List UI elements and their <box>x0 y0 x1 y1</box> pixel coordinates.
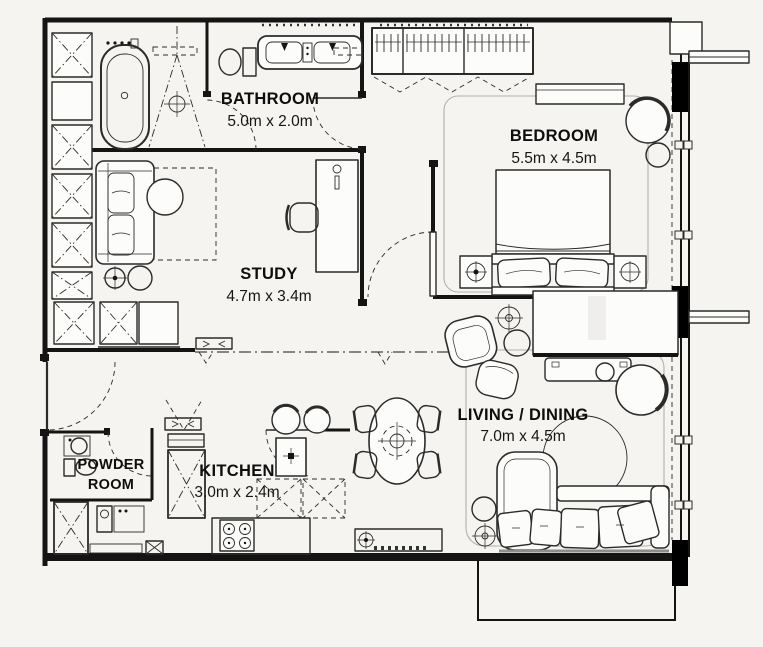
bed-duvet <box>496 170 610 254</box>
living-dining-dims: 7.0m x 4.5m <box>480 428 565 445</box>
wall-end-cap <box>203 91 211 97</box>
sofa-cushion <box>497 510 534 548</box>
wall-end-cap <box>358 299 367 306</box>
lamp-dot <box>474 270 479 275</box>
burner-dot <box>244 542 246 544</box>
study-label: STUDY <box>240 265 297 283</box>
pillow <box>555 258 608 289</box>
faucet-dot-icon <box>120 41 123 44</box>
wardrobe-carcass <box>372 28 533 74</box>
mullion-icon <box>684 141 692 149</box>
corner-column <box>670 22 702 54</box>
living-dining-label: LIVING / DINING <box>457 406 588 424</box>
sofa-bed <box>96 161 154 264</box>
tv-console <box>545 358 631 381</box>
mullion-icon <box>675 501 683 509</box>
sofa-cushion <box>530 509 563 546</box>
toiletries-dot <box>306 53 308 55</box>
burner-dot <box>228 528 230 530</box>
knob-dot <box>125 510 128 513</box>
burner-dot <box>244 528 246 530</box>
pillow-shape <box>497 258 550 289</box>
wall-end-cap <box>429 160 438 167</box>
faucet-dot-icon <box>113 41 116 44</box>
powder-room-label-line1: POWDER <box>77 457 144 473</box>
toiletries-dot <box>306 47 308 49</box>
floor-plan-drawing: BATHROOM 5.0m x 2.0m BEDROOM 5.5m x 4.5m… <box>0 0 763 647</box>
mullion-icon <box>675 141 683 149</box>
desk <box>316 160 358 272</box>
cushion-shape <box>530 509 563 546</box>
sofa-cushion <box>560 508 599 548</box>
closet-box <box>139 302 178 344</box>
dresser <box>536 84 624 104</box>
island-faucet-icon <box>288 453 294 459</box>
door-frame-tick <box>40 429 49 436</box>
kitchen-label: KITCHEN <box>199 462 274 480</box>
closet-box <box>52 82 92 120</box>
grille-dot <box>364 538 368 542</box>
vanity-counter <box>258 36 362 69</box>
study-dims: 4.7m x 3.4m <box>226 288 311 305</box>
faucet-dot-icon <box>106 41 109 44</box>
powder-room-label-line2: ROOM <box>88 477 134 493</box>
pillow <box>497 258 550 289</box>
mullion-icon <box>684 231 692 239</box>
bathroom-label: BATHROOM <box>221 90 319 108</box>
mullion-icon <box>675 231 683 239</box>
bedroom-door-leaf <box>430 232 436 296</box>
bathroom-dims: 5.0m x 2.0m <box>227 113 312 130</box>
wall-hatch-3 <box>672 540 688 586</box>
wall-hatch-1 <box>672 62 688 112</box>
ottoman <box>147 179 183 215</box>
pillow-shape <box>555 258 608 289</box>
mullion-icon <box>684 436 692 444</box>
mullion-icon <box>675 436 683 444</box>
wall-end-cap <box>358 146 366 153</box>
lamp-dot <box>113 276 118 281</box>
floor-plan-page: BATHROOM 5.0m x 2.0m BEDROOM 5.5m x 4.5m… <box>0 0 763 647</box>
burner-dot <box>228 542 230 544</box>
tv-unit-gleam <box>588 296 606 340</box>
bedroom-dims: 5.5m x 4.5m <box>511 150 596 167</box>
faucet-dot-icon <box>127 41 130 44</box>
mullion-icon <box>684 501 692 509</box>
wall-end-cap <box>358 91 366 98</box>
cushion-shape <box>497 510 534 548</box>
door-frame-tick <box>104 428 110 435</box>
sink-tap-dot <box>69 439 72 442</box>
door-frame-tick <box>40 354 49 361</box>
knob-dot <box>119 510 122 513</box>
bedroom-label: BEDROOM <box>510 127 598 145</box>
cushion-shape <box>560 508 599 548</box>
kitchen-dims: 3.0m x 2.4m <box>194 484 279 501</box>
